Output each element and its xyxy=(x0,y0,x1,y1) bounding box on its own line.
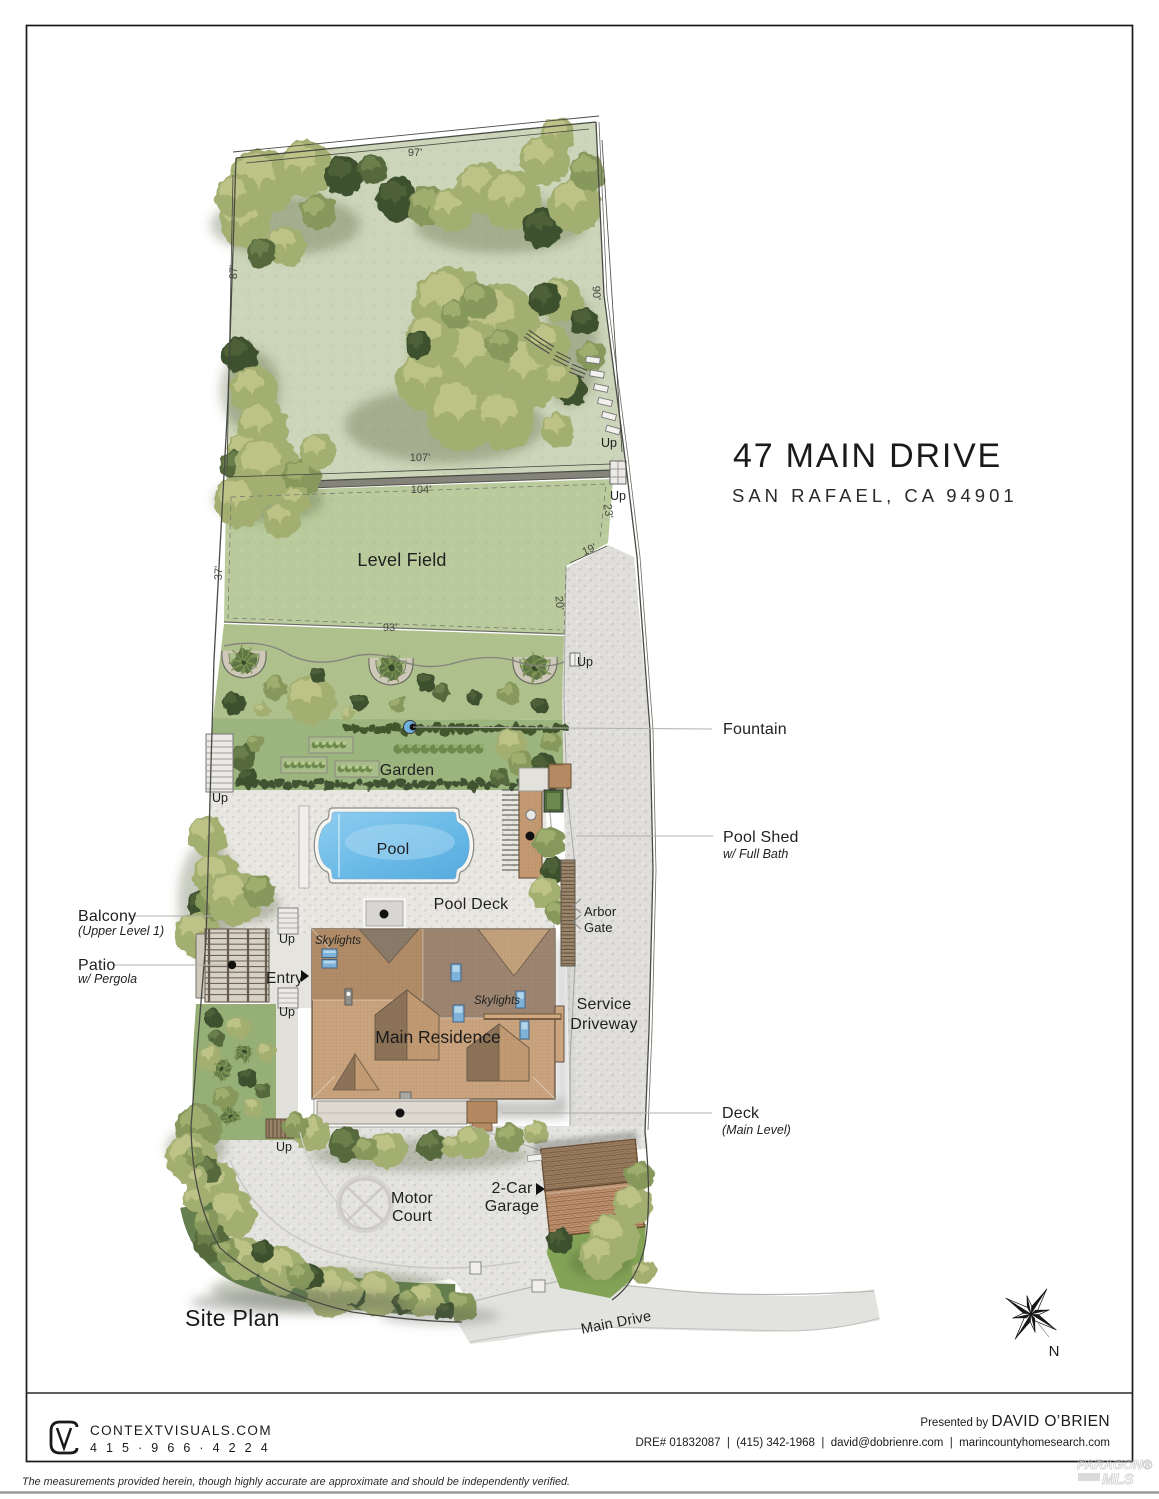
svg-text:Level Field: Level Field xyxy=(357,550,446,570)
svg-text:47 MAIN DRIVE: 47 MAIN DRIVE xyxy=(733,437,1002,475)
svg-text:Site Plan: Site Plan xyxy=(185,1305,280,1331)
svg-text:Up: Up xyxy=(577,655,593,669)
svg-text:w/ Full Bath: w/ Full Bath xyxy=(723,847,788,861)
svg-text:Fountain: Fountain xyxy=(723,721,787,738)
svg-text:CONTEXTVISUALS.COM: CONTEXTVISUALS.COM xyxy=(90,1423,272,1438)
svg-text:20': 20' xyxy=(552,595,565,610)
svg-text:Up: Up xyxy=(279,1005,295,1019)
svg-text:Skylights: Skylights xyxy=(474,995,520,1007)
svg-text:Up: Up xyxy=(212,791,228,805)
svg-text:N: N xyxy=(1049,1343,1060,1360)
svg-text:93': 93' xyxy=(383,622,397,634)
svg-text:104': 104' xyxy=(411,484,431,496)
svg-text:(Upper Level 1): (Upper Level 1) xyxy=(78,924,164,938)
svg-text:Arbor: Arbor xyxy=(584,904,617,919)
svg-text:87': 87' xyxy=(228,265,240,280)
svg-text:Main Residence: Main Residence xyxy=(375,1027,500,1047)
svg-text:4 1 5 · 9 6 6 · 4 2 2 4: 4 1 5 · 9 6 6 · 4 2 2 4 xyxy=(90,1441,270,1455)
svg-text:Garage: Garage xyxy=(485,1198,540,1215)
svg-text:Deck: Deck xyxy=(722,1105,760,1122)
svg-text:90': 90' xyxy=(590,285,603,300)
svg-text:DRE# 01832087 | (415) 342-19: DRE# 01832087 | (415) 342-1968 | david@d… xyxy=(636,1437,1111,1449)
svg-text:Entry: Entry xyxy=(266,970,303,987)
svg-text:Driveway: Driveway xyxy=(570,1016,637,1033)
svg-text:Motor: Motor xyxy=(391,1190,433,1207)
svg-text:Up: Up xyxy=(601,436,617,450)
svg-text:Balcony: Balcony xyxy=(78,908,136,925)
svg-text:23': 23' xyxy=(601,503,615,519)
svg-text:Garden: Garden xyxy=(380,762,435,779)
svg-text:Up: Up xyxy=(610,489,626,503)
svg-text:(Main Level): (Main Level) xyxy=(722,1123,791,1137)
svg-text:37': 37' xyxy=(213,566,225,581)
svg-text:Pool Deck: Pool Deck xyxy=(434,896,510,913)
svg-text:MLS: MLS xyxy=(1102,1471,1134,1488)
svg-text:Pool: Pool xyxy=(377,841,410,858)
svg-text:w/ Pergola: w/ Pergola xyxy=(78,972,137,986)
svg-text:Skylights: Skylights xyxy=(315,935,361,947)
svg-text:Service: Service xyxy=(577,996,632,1013)
svg-text:Up: Up xyxy=(279,932,295,946)
svg-text:97': 97' xyxy=(408,147,422,159)
svg-text:Gate: Gate xyxy=(584,920,613,935)
svg-text:2-Car: 2-Car xyxy=(491,1180,532,1197)
svg-text:107': 107' xyxy=(410,452,430,464)
svg-text:Court: Court xyxy=(392,1208,432,1225)
svg-text:Pool Shed: Pool Shed xyxy=(723,829,799,846)
svg-text:Up: Up xyxy=(276,1140,292,1154)
svg-text:The measurements provided here: The measurements provided herein, though… xyxy=(22,1476,570,1488)
svg-text:PARAGON®: PARAGON® xyxy=(1077,1457,1152,1472)
svg-text:SAN RAFAEL, CA 94901: SAN RAFAEL, CA 94901 xyxy=(732,485,1018,506)
